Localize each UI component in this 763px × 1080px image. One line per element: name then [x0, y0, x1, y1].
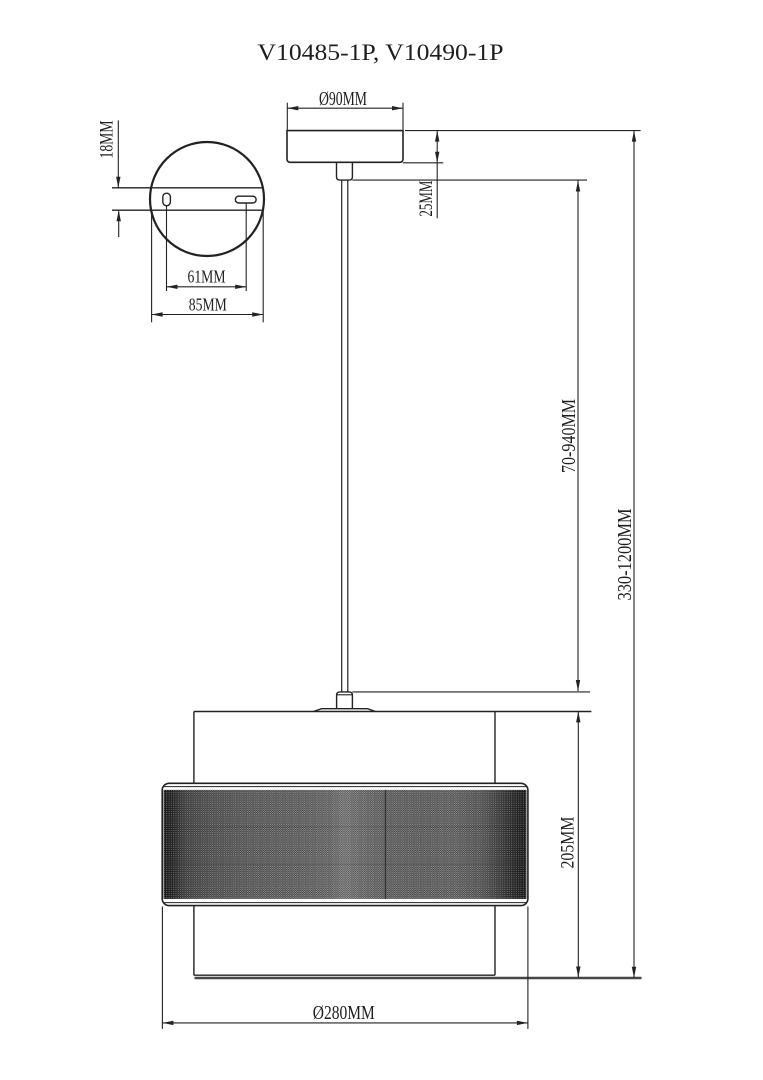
svg-text:205MM: 205MM — [558, 816, 579, 868]
svg-text:61MM: 61MM — [188, 266, 226, 286]
svg-text:85MM: 85MM — [189, 295, 227, 315]
svg-text:Ø90MM: Ø90MM — [319, 88, 367, 110]
svg-text:V10485-1P, V10490-1P: V10485-1P, V10490-1P — [258, 40, 504, 65]
svg-text:Ø280MM: Ø280MM — [313, 1002, 375, 1024]
svg-text:330-1200MM: 330-1200MM — [615, 509, 636, 601]
svg-text:18MM: 18MM — [97, 120, 118, 158]
svg-text:25MM: 25MM — [416, 181, 437, 217]
svg-text:70-940MM: 70-940MM — [559, 399, 580, 473]
